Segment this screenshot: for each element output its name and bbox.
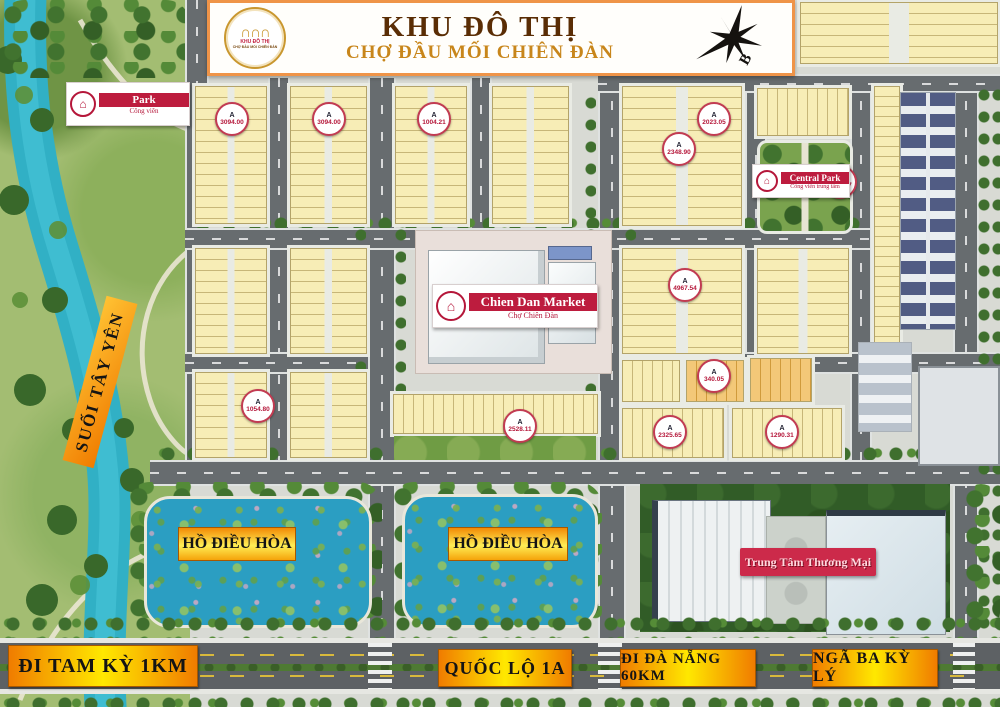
compass-north-label: B [737, 51, 756, 68]
park-sign: ⌂ Park Công viên [66, 82, 190, 126]
lot-block [622, 248, 742, 354]
market-sign-title: Chien Dan Market [469, 293, 597, 311]
road-label-text: NGÃ BA KỲ LÝ [813, 650, 937, 686]
lot-block [732, 408, 842, 458]
road-label-text: ĐI TAM KỲ 1KM [18, 655, 187, 678]
market-sign-subtitle: Chợ Chiên Đàn [469, 311, 597, 320]
lot-block [757, 88, 849, 136]
logo-glyph: ⌂ [447, 298, 455, 314]
lot-block [874, 86, 900, 348]
mall-sign-text: Trung Tâm Thương Mại [745, 555, 871, 570]
lot-block [800, 2, 998, 64]
central-park-sign-text: Central Park Công viên trung tâm [781, 172, 849, 190]
logo-arches-icon: ∩∩∩ [240, 27, 270, 39]
banner-text: KHU ĐÔ THỊ CHỢ ĐẦU MỐI CHIÊN ĐÀN [286, 12, 674, 64]
banner-subtitle: CHỢ ĐẦU MỐI CHIÊN ĐÀN [286, 42, 674, 64]
townhouse-rows [900, 92, 956, 330]
townhouse-rows-light [858, 342, 912, 432]
tree-cluster [962, 484, 1000, 632]
banner-title: KHU ĐÔ THỊ [286, 12, 674, 42]
road-label-tam-ky: ĐI TAM KỲ 1KM [8, 645, 198, 687]
lot-block [622, 408, 724, 458]
lot-block [757, 248, 849, 354]
lake-label-right: HỒ ĐIỀU HÒA [448, 527, 568, 561]
logo-glyph: ⌂ [79, 97, 86, 111]
crosswalk [368, 643, 392, 689]
lot-block [195, 86, 267, 224]
park-sign-text: Park Công viên [99, 93, 189, 115]
mall-sign: Trung Tâm Thương Mại [740, 548, 876, 576]
park-logo-icon: ⌂ [70, 91, 96, 117]
park-sign-title: Park [99, 93, 189, 107]
central-park-sign-subtitle: Công viên trung tâm [781, 184, 849, 190]
lot-block [622, 86, 742, 226]
logo-glyph: ⌂ [764, 176, 770, 187]
crosswalk [953, 643, 975, 689]
project-banner: ∩∩∩ KHU ĐÔ THỊ CHỢ ĐẦU MỐI CHIÊN ĐÀN KHU… [207, 0, 795, 76]
road-label-ql1a: QUỐC LỘ 1A [438, 649, 572, 687]
market-sign: ⌂ Chien Dan Market Chợ Chiên Đàn [432, 284, 598, 328]
park-sign-subtitle: Công viên [99, 107, 189, 115]
central-park-logo-icon: ⌂ [756, 170, 778, 192]
lake-label-left: HỒ ĐIỀU HÒA [178, 527, 296, 561]
lot-block [750, 358, 812, 402]
compass-rose: B [674, 2, 792, 74]
highway-tree-row-south [0, 694, 1000, 707]
logo-subtitle: CHỢ ĐẦU MỐI CHIÊN ĐÀN [233, 45, 278, 50]
large-building [918, 366, 1000, 466]
regulating-lake-right [402, 494, 598, 628]
regulating-lake-left [144, 496, 372, 628]
market-blue-roof [548, 246, 592, 260]
park-strip [394, 436, 596, 460]
compass-star-icon: B [674, 2, 792, 74]
lot-block [686, 360, 744, 402]
central-park-sign: ⌂ Central Park Công viên trung tâm [752, 164, 850, 198]
highway-tree-row-north [0, 614, 1000, 638]
road-label-ky-ly: NGÃ BA KỲ LÝ [812, 649, 938, 687]
road-label-text: ĐI ĐÀ NẴNG 60KM [621, 651, 755, 685]
lot-block [290, 248, 367, 354]
lot-block [395, 86, 467, 224]
road-vertical-a [268, 78, 290, 462]
central-park-sign-title: Central Park [781, 172, 849, 184]
tree-cluster [0, 0, 190, 78]
master-plan-map: ĐI TAM KỲ 1KM QUỐC LỘ 1A ĐI ĐÀ NẴNG 60KM… [0, 0, 1000, 707]
lot-block [290, 372, 367, 458]
lot-block [492, 86, 569, 224]
lot-block [195, 248, 267, 354]
lot-block [195, 372, 267, 458]
lot-block [290, 86, 367, 224]
lot-block [393, 394, 598, 434]
road-label-da-nang: ĐI ĐÀ NẴNG 60KM [620, 649, 756, 687]
road-horizontal-2-left [185, 352, 368, 374]
lake-label-text: HỒ ĐIỀU HÒA [453, 535, 562, 553]
road-label-text: QUỐC LỘ 1A [444, 658, 565, 679]
market-logo-icon: ⌂ [436, 291, 466, 321]
lot-block [622, 360, 680, 402]
lake-label-text: HỒ ĐIỀU HÒA [182, 535, 291, 553]
project-logo: ∩∩∩ KHU ĐÔ THỊ CHỢ ĐẦU MỐI CHIÊN ĐÀN [224, 7, 286, 69]
crosswalk [598, 643, 622, 689]
market-sign-text: Chien Dan Market Chợ Chiên Đàn [469, 293, 597, 320]
